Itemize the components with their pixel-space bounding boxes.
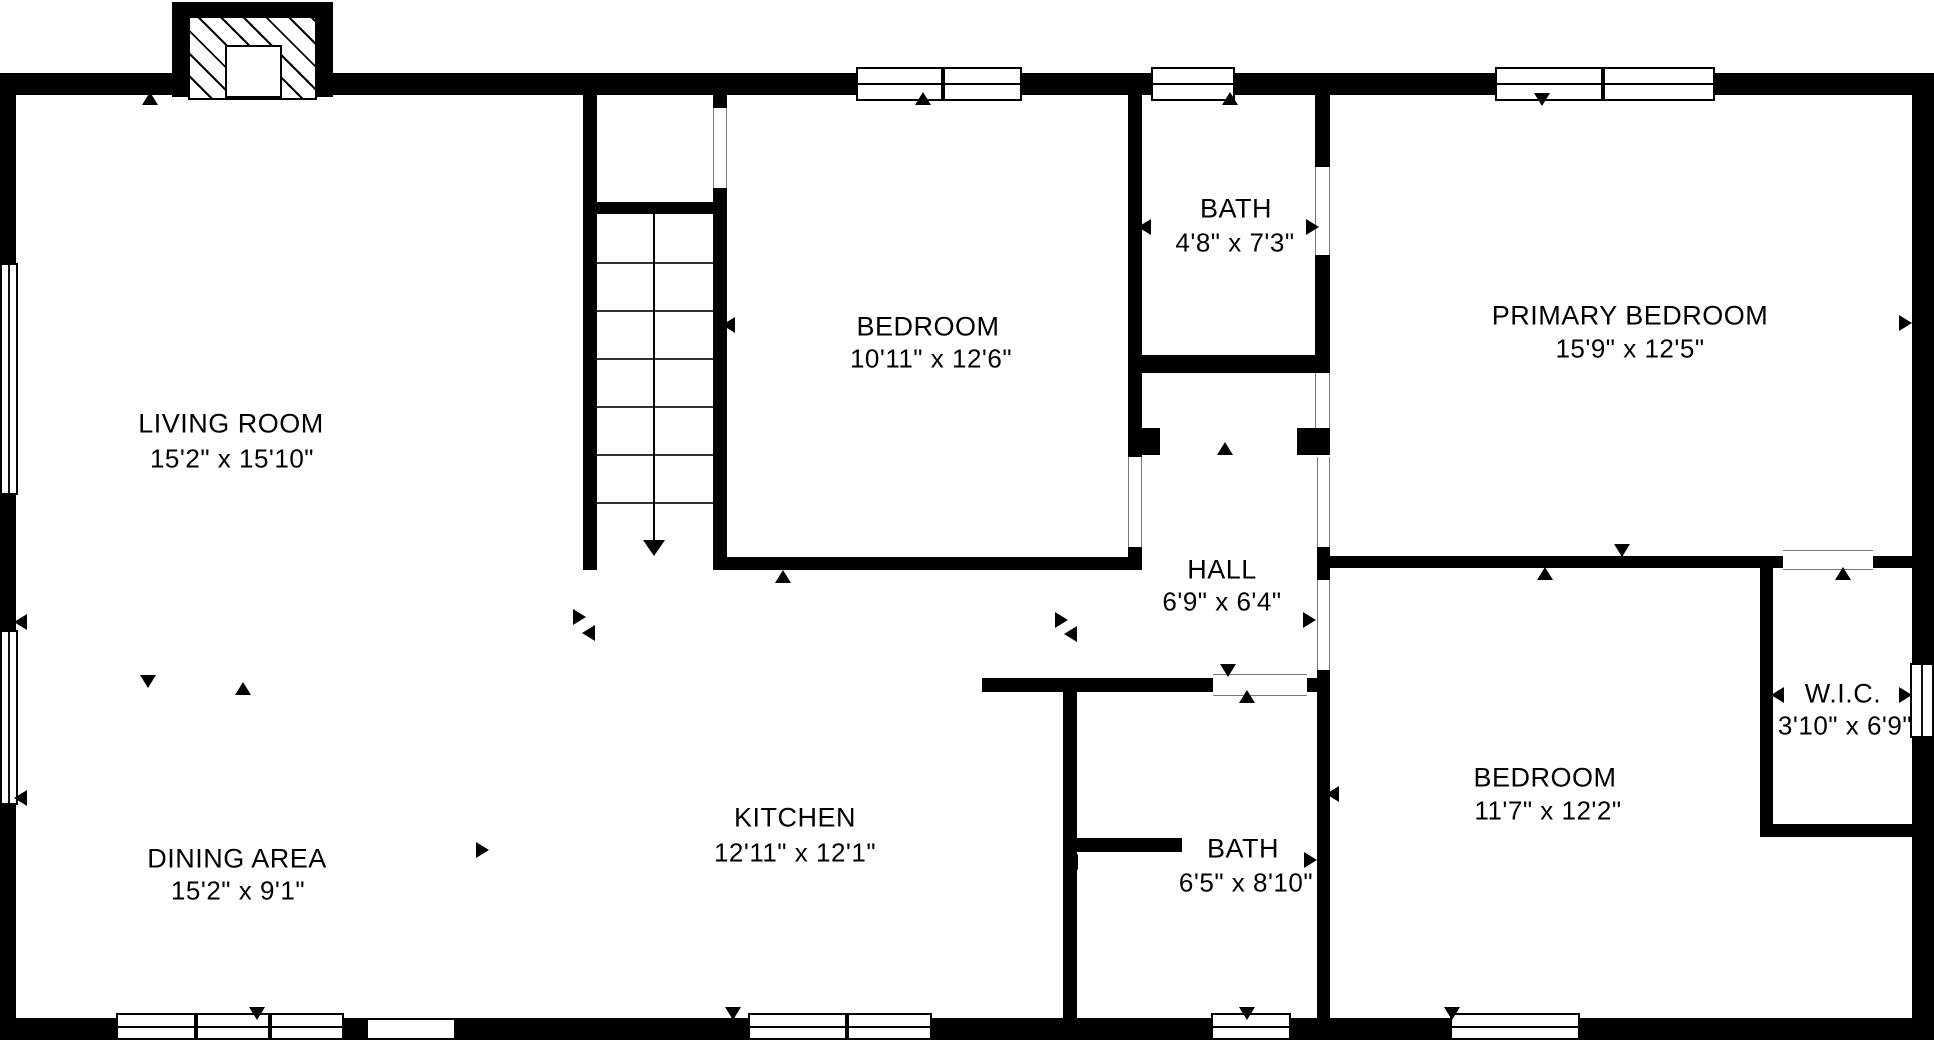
stair-tread: [597, 502, 713, 504]
room-dimensions-bedroom-top: 10'11" x 12'6": [850, 344, 1012, 375]
door-swing-arrow-icon: [1064, 626, 1077, 642]
wall: [982, 678, 1213, 692]
room-dimensions-dining-area: 15'2" x 9'1": [171, 876, 305, 907]
door-swing-arrow-icon: [1534, 93, 1550, 106]
window-vertical: [0, 263, 18, 495]
wall: [1297, 428, 1330, 455]
door-swing-arrow-icon: [235, 682, 251, 695]
wall: [1760, 824, 1912, 837]
window-glass-line: [118, 1026, 342, 1028]
window-mullion: [1601, 69, 1605, 99]
door-swing-arrow-icon: [1138, 219, 1151, 235]
door-swing-arrow-icon: [582, 625, 595, 641]
door-swing-arrow-icon: [1065, 854, 1078, 870]
wall: [1912, 73, 1934, 1040]
wall: [1873, 556, 1912, 568]
wall: [1307, 678, 1317, 692]
door-opening: [1128, 457, 1142, 547]
room-label-bedroom-lower: BEDROOM: [1473, 763, 1616, 794]
door-swing-arrow-icon: [14, 790, 27, 806]
door-swing-arrow-icon: [915, 92, 931, 105]
door-opening: [1315, 373, 1330, 428]
room-label-wic: W.I.C.: [1805, 679, 1882, 710]
wall: [1077, 838, 1182, 852]
door-swing-arrow-icon: [140, 675, 156, 688]
window-mullion: [194, 1015, 198, 1038]
wall: [1315, 95, 1330, 167]
stair-direction-line: [653, 214, 655, 540]
window-mullion: [941, 69, 945, 99]
room-label-bath-lower: BATH: [1207, 834, 1279, 865]
door-swing-arrow-icon: [1217, 442, 1233, 455]
room-label-bedroom-top: BEDROOM: [856, 312, 999, 343]
door-opening: [713, 108, 727, 188]
wall: [713, 95, 727, 108]
window-glass-line: [8, 632, 10, 803]
window-mullion: [268, 1015, 272, 1038]
window-glass-line: [750, 1026, 930, 1028]
door-swing-arrow-icon: [1303, 612, 1316, 628]
window-glass-line: [1452, 1026, 1578, 1028]
door-swing-arrow-icon: [1239, 690, 1255, 703]
window-glass-line: [1153, 83, 1233, 85]
room-dimensions-bath-lower: 6'5" x 8'10": [1179, 868, 1313, 899]
door-swing-arrow-icon: [142, 92, 158, 105]
window-horizontal: [116, 1013, 344, 1040]
door-swing-arrow-icon: [1537, 567, 1553, 580]
room-dimensions-wic: 3'10" x 6'9": [1778, 711, 1912, 742]
door-swing-arrow-icon: [722, 317, 735, 333]
window-horizontal: [748, 1013, 932, 1040]
room-label-hall: HALL: [1187, 555, 1257, 586]
room-label-dining-area: DINING AREA: [147, 844, 327, 875]
window-glass-line: [858, 83, 1020, 85]
stair-tread: [597, 262, 713, 264]
door-swing-arrow-icon: [573, 609, 586, 625]
window-glass-line: [1213, 1026, 1289, 1028]
window-vertical: [0, 630, 18, 805]
door-opening: [1317, 457, 1330, 547]
room-label-living-room: LIVING ROOM: [138, 409, 324, 440]
door-swing-arrow-icon: [249, 1007, 265, 1020]
door-swing-arrow-icon: [725, 1007, 741, 1020]
window-horizontal: [1495, 67, 1715, 101]
wall: [1317, 670, 1330, 1018]
door-swing-arrow-icon: [476, 842, 489, 858]
stair-tread: [597, 358, 713, 360]
door-swing-arrow-icon: [1899, 315, 1912, 331]
room-dimensions-hall: 6'9" x 6'4": [1162, 587, 1281, 618]
room-label-kitchen: KITCHEN: [734, 803, 856, 834]
wall: [597, 202, 713, 214]
door-swing-arrow-icon: [1326, 786, 1339, 802]
window-vertical: [1910, 663, 1934, 738]
wall: [1128, 355, 1330, 373]
wall: [1315, 255, 1330, 355]
room-dimensions-living-room: 15'2" x 15'10": [150, 444, 314, 475]
room-label-bath-top: BATH: [1200, 194, 1272, 225]
door-swing-arrow-icon: [1239, 1007, 1255, 1020]
door-swing-arrow-icon: [1306, 219, 1319, 235]
door-opening: [1315, 167, 1330, 255]
window-glass-line: [1921, 665, 1923, 736]
door-swing-arrow-icon: [14, 614, 27, 630]
door-swing-arrow-icon: [1220, 664, 1236, 677]
floor-plan-canvas: LIVING ROOM15'2" x 15'10"DINING AREA15'2…: [0, 0, 1934, 1040]
room-dimensions-bath-top: 4'8" x 7'3": [1175, 228, 1294, 259]
window-horizontal: [856, 67, 1022, 101]
room-dimensions-primary-bedroom: 15'9" x 12'5": [1555, 334, 1704, 365]
window-glass-line: [1497, 83, 1713, 85]
door-swing-arrow-icon: [1614, 544, 1630, 557]
window-horizontal: [1450, 1013, 1580, 1040]
wall: [1128, 547, 1142, 570]
door-opening: [365, 1020, 457, 1038]
wall: [583, 95, 597, 570]
room-dimensions-kitchen: 12'11" x 12'1": [714, 838, 876, 869]
window-glass-line: [8, 265, 10, 493]
door-swing-arrow-icon: [1444, 1007, 1460, 1020]
room-label-primary-bedroom: PRIMARY BEDROOM: [1492, 301, 1769, 332]
door-opening: [1783, 550, 1873, 570]
stair-tread: [597, 454, 713, 456]
stair-tread: [597, 310, 713, 312]
door-opening: [1317, 580, 1330, 670]
stair-down-arrow-icon: [643, 540, 665, 556]
door-swing-arrow-icon: [1771, 687, 1784, 703]
wall: [1128, 428, 1160, 455]
wall: [713, 188, 727, 570]
door-swing-arrow-icon: [775, 570, 791, 583]
room-dimensions-bedroom-lower: 11'7" x 12'2": [1474, 796, 1621, 827]
door-swing-arrow-icon: [1899, 687, 1912, 703]
wall: [0, 73, 16, 1040]
door-swing-arrow-icon: [1304, 852, 1317, 868]
wall: [1128, 95, 1142, 457]
wall: [713, 557, 1142, 570]
door-swing-arrow-icon: [1835, 567, 1851, 580]
door-opening: [1213, 674, 1307, 696]
door-swing-arrow-icon: [1222, 92, 1238, 105]
stair-tread: [597, 406, 713, 408]
fireplace-firebox: [225, 45, 282, 98]
window-mullion: [845, 1015, 849, 1038]
